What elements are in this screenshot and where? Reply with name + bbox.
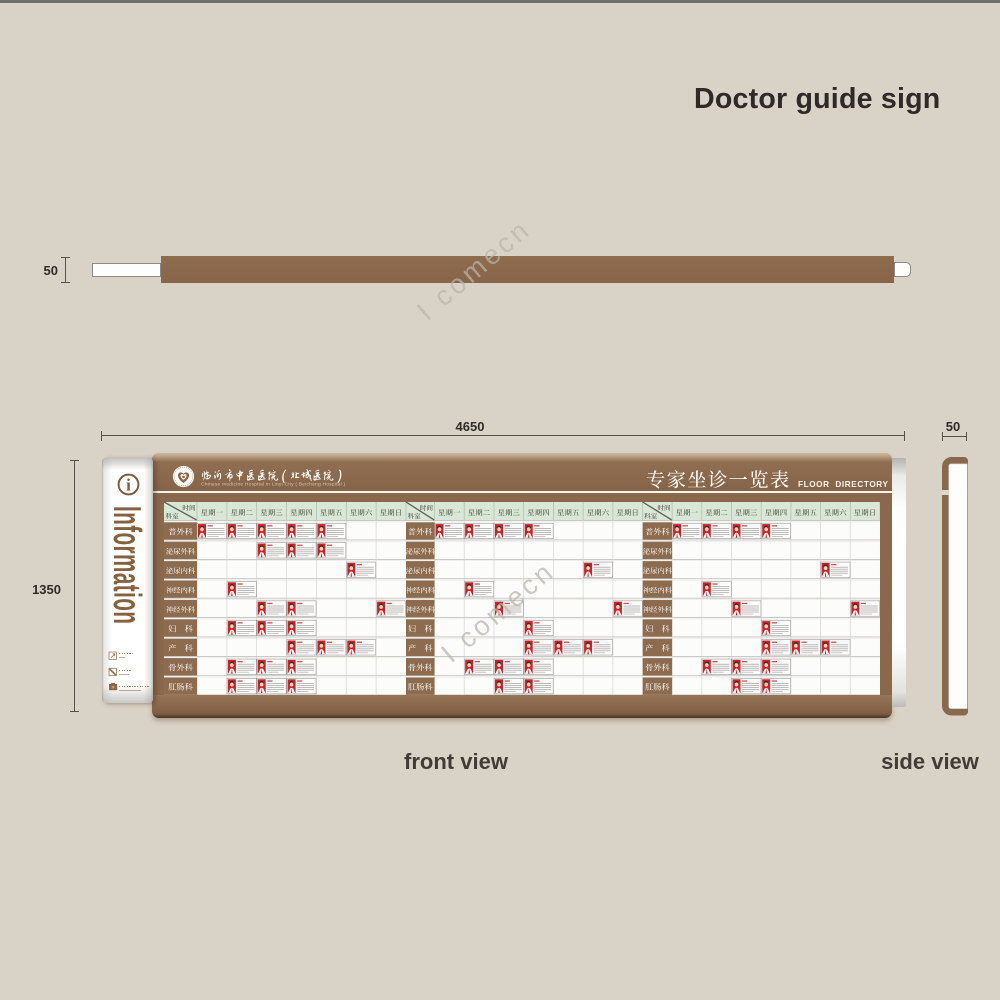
svg-text:i: i	[126, 475, 131, 494]
